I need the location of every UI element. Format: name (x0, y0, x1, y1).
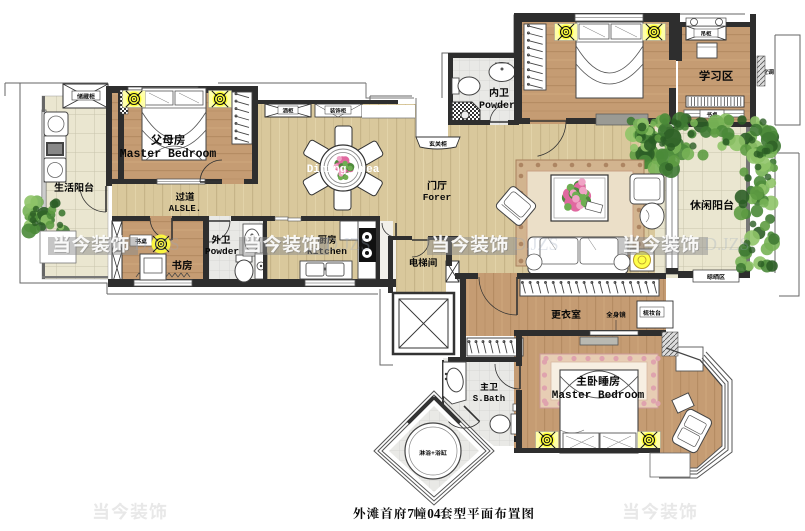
svg-text:S.Bath: S.Bath (473, 394, 505, 404)
svg-text:+: + (431, 450, 435, 457)
svg-text:Powder: Powder (479, 100, 515, 112)
svg-text:Powder: Powder (205, 246, 240, 257)
svg-text:04: 04 (427, 506, 441, 521)
svg-text:D.JZS: D.JZS (325, 234, 371, 254)
svg-text:Forer: Forer (423, 192, 452, 203)
svg-text:D.JZS: D.JZS (704, 234, 750, 254)
svg-text:Master Bedroom: Master Bedroom (552, 390, 645, 402)
svg-text:ALSLE.: ALSLE. (169, 204, 201, 214)
svg-text:7: 7 (407, 506, 414, 521)
svg-text:D.JZS: D.JZS (134, 234, 180, 254)
svg-text:D.JZS: D.JZS (513, 234, 559, 254)
svg-text:Dining Area: Dining Area (307, 164, 380, 176)
svg-text:Master Bedroom: Master Bedroom (120, 148, 217, 161)
